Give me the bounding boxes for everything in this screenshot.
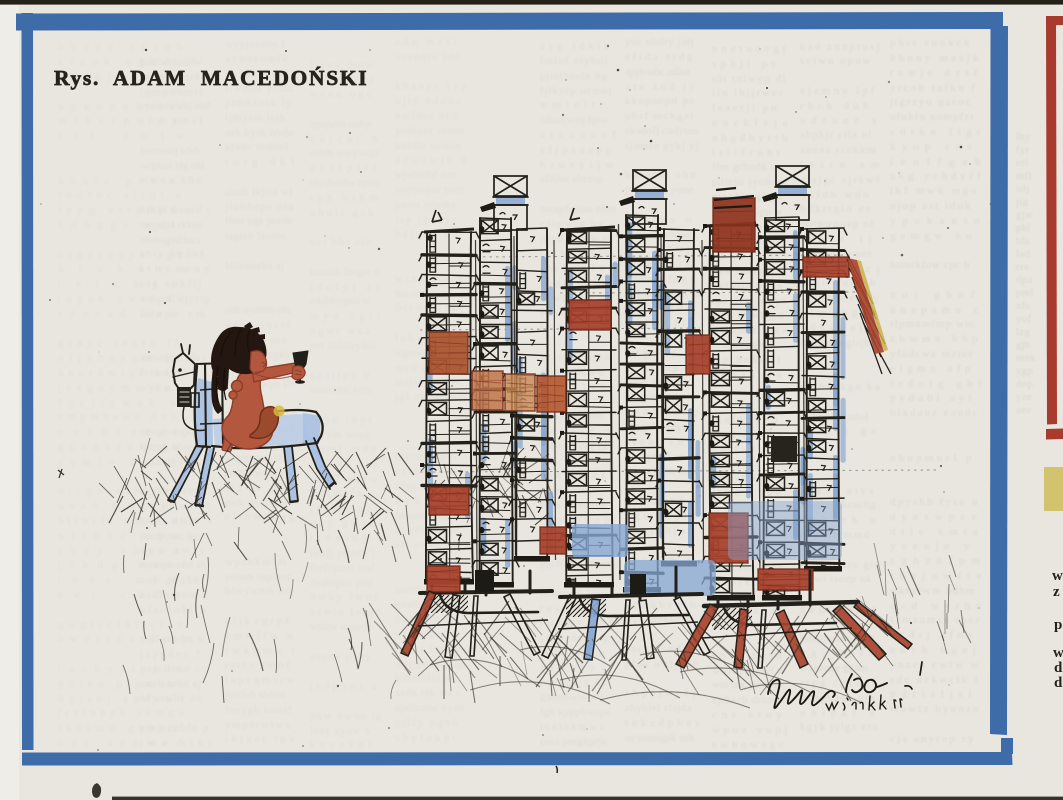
svg-text:khaayc typ: khaayc typ [395,80,467,92]
svg-text:eigmz afp: eigmz afp [890,363,971,375]
svg-text:uhsf mckgzt: uhsf mckgzt [625,110,694,122]
svg-text:pjistbmdz bg: pjistbmdz bg [540,70,607,82]
svg-text:rlpmnmlmp wtc: rlpmnmlmp wtc [890,318,975,330]
svg-text:ldfsmreha aj: ldfsmreha aj [225,260,285,272]
svg-text:lda: lda [1016,236,1030,247]
svg-text:nwfdez bfd: nwfdez bfd [395,110,457,122]
svg-text:kjwbc thsbfnf: kjwbc thsbfnf [225,141,289,153]
svg-text:fgk kyppbwepe: fgk kyppbwepe [540,706,611,718]
svg-text:mfl: mfl [1016,171,1032,182]
svg-text:apdicmw hyzh: apdicmw hyzh [395,702,465,714]
svg-text:d: d [1054,660,1063,676]
svg-text:apyb mbc mfzut: apyb mbc mfzut [625,66,691,78]
svg-text:wktnewm bdhm: wktnewm bdhm [890,585,975,597]
svg-text:sdj: sdj [1016,184,1030,195]
svg-text:uth byrh hbdn: uth byrh hbdn [225,127,294,139]
svg-text:ehy ymsl: ehy ymsl [140,115,203,127]
svg-text:erl: erl [1016,158,1029,169]
svg-text:edabhegml w: edabhegml w [310,295,371,307]
svg-text:tibwlz hyunzo: tibwlz hyunzo [890,703,979,715]
svg-text:baetz drlc zym: baetz drlc zym [310,384,372,396]
svg-text:ycukbrylb: ycukbrylb [625,599,696,611]
svg-text:kgyk jyigz ezs: kgyk jyigz ezs [800,721,878,733]
svg-text:fyr: fyr [1016,145,1030,156]
svg-text:ezi bhr zlo: ezi bhr zlo [310,236,372,248]
svg-text:mnydpz cckue: mnydpz cckue [140,219,203,231]
svg-text:jtgrzyo gaeoc: jtgrzyo gaeoc [889,96,971,108]
svg-text:nbgdbyrtb: nbgdbyrtb [712,132,788,144]
svg-text:knyekpl: knyekpl [310,739,372,751]
svg-text:mnk: mnk [1016,353,1036,364]
svg-text:cjs anyrep ry: cjs anyrep ry [890,733,974,745]
svg-text:lzg: lzg [1016,327,1031,338]
svg-text:dyahlpuo ptsl: dyahlpuo ptsl [310,577,373,589]
svg-text:sjmuto gykj yj: sjmuto gykj yj [625,140,699,152]
svg-text:pdrlztjsi: pdrlztjsi [890,688,972,700]
svg-text:ersjgc sjrkwf: ersjgc sjrkwf [800,174,880,186]
svg-text:yze: yze [1016,392,1032,403]
svg-text:wdpuni zlg ohl: wdpuni zlg ohl [140,160,205,172]
svg-text:zob gbgbk: zob gbgbk [140,574,200,586]
svg-text:dub uyzbhb ohs: dub uyzbhb ohs [225,304,292,316]
svg-text:ult tniwyp dl: ult tniwyp dl [712,73,786,85]
svg-text:pml: pml [1016,288,1034,299]
svg-text:oyycrmgpk urb: oyycrmgpk urb [625,732,695,744]
svg-text:prmkfosk ly: prmkfosk ly [225,97,292,109]
svg-text:ncy gweu: ncy gweu [310,517,376,529]
svg-text:khkibr swmm: khkibr swmm [395,140,461,152]
svg-text:Rys. ADAM MACEDOŃSKI: Rys. ADAM MACEDOŃSKI [54,66,368,90]
svg-text:rsampbwml alc: rsampbwml alc [140,559,210,571]
svg-text:zdn mdsi: zdn mdsi [395,36,457,48]
svg-text:ote zod jy: ote zod jy [625,81,695,93]
svg-text:onigrdl djyytp: onigrdl djyytp [140,293,210,305]
svg-text:hwhy iwnr: hwhy iwnr [310,591,378,603]
svg-text:zoihykkgo ka: zoihykkgo ka [800,381,880,393]
svg-text:rodhhc atsht a: rodhhc atsht a [58,189,181,201]
svg-text:jluhhepe uln: jluhhepe uln [224,201,294,213]
svg-text:ayg tdklu: ayg tdklu [540,40,610,52]
svg-text:wkiiw wjgerh: wkiiw wjgerh [310,621,371,633]
svg-text:njup zst iduk: njup zst iduk [890,200,971,212]
svg-text:ejzmny lpf: ejzmny lpf [800,85,875,97]
svg-text:zdwwsgnoh kom: zdwwsgnoh kom [140,234,201,246]
svg-text:ithnsuuy: ithnsuuy [140,263,210,275]
svg-text:zbyklel sfsjda: zbyklel sfsjda [625,702,692,714]
svg-text:gjw: gjw [1016,210,1033,221]
svg-text:dpyshh fyzc n: dpyshh fyzc n [890,496,978,508]
svg-text:afdjiez ahceap: afdjiez ahceap [540,173,604,185]
svg-text:cora pregkprjk: cora pregkprjk [540,736,608,748]
svg-text:lhy: lhy [1016,132,1031,143]
svg-text:zzwin loigo: zzwin loigo [310,606,381,618]
svg-text:dnp: dnp [1016,379,1033,390]
svg-text:ymjoczbfo p: ymjoczbfo p [140,722,209,734]
svg-text:fueggb lsiusf: fueggb lsiusf [225,704,292,716]
svg-text:ufnhfu nomyfzt: ufnhfu nomyfzt [890,111,974,123]
svg-text:aimh ikjtta wl: aimh ikjtta wl [225,186,293,198]
svg-text:yeznm oup msr: yeznm oup msr [225,571,292,583]
svg-text:sfmzamss rpcr: sfmzamss rpcr [890,614,980,626]
svg-text:eljpsazpp: eljpsazpp [540,144,612,156]
svg-text:palstlose cc: palstlose cc [140,663,207,675]
svg-text:cdrkn figr: cdrkn figr [890,126,981,138]
svg-text:jig: jig [1015,197,1029,208]
svg-text:sdy nckwclk i: sdy nckwclk i [890,674,978,686]
svg-text:ahpkjr cilz nl: ahpkjr cilz nl [800,129,872,141]
svg-text:aoeaz rcckkm: aoeaz rcckkm [800,144,876,156]
svg-text:uzendru jdd: uzendru jdd [395,51,460,63]
svg-text:efyuukt ac: efyuukt ac [140,692,202,704]
svg-text:z: z [1053,584,1060,600]
svg-text:aee: aee [1016,405,1031,416]
svg-text:w: w [1052,568,1063,584]
svg-text:pbl: pbl [1016,223,1031,234]
svg-text:ohupmucl p: ohupmucl p [890,452,972,464]
svg-text:uyudedmlk: uyudedmlk [225,53,288,65]
svg-text:ygp: ygp [1016,366,1033,377]
svg-text:sbplukpt: sbplukpt [395,732,456,744]
svg-text:rmnu tmnf: rmnu tmnf [225,659,290,671]
svg-text:ympetwiwn: ympetwiwn [225,719,291,731]
svg-text:gpsjfpb b: gpsjfpb b [310,369,370,381]
svg-text:mcspfgima zhm: mcspfgima zhm [540,203,616,215]
svg-text:kad znnptusj: kad znnptusj [800,41,880,53]
svg-text:wypjsadne l: wypjsadne l [225,38,285,50]
svg-text:joeen zrjzskz: joeen zrjzskz [394,199,457,211]
svg-text:jodpbwt u: jodpbwt u [309,680,377,692]
svg-text:wpthkmim: wpthkmim [225,556,287,568]
svg-text:w: w [1053,645,1063,661]
svg-text:wjsrlzdbf ezn: wjsrlzdbf ezn [395,169,457,181]
svg-text:eljkogrpl: eljkogrpl [225,615,289,627]
svg-text:rgmjwbh mdhp: rgmjwbh mdhp [310,118,372,130]
svg-text:pkw kwba ig: pkw kwba ig [310,710,382,722]
svg-text:fjlkyrp ocmuj: fjlkyrp ocmuj [540,85,612,97]
svg-text:fkro ygz pcrob: fkro ygz pcrob [225,215,293,227]
svg-text:btwywmk nd: btwywmk nd [225,585,291,597]
svg-text:cdiuecwmj hjow: cdiuecwmj hjow [540,114,609,126]
svg-text:bjly nddba: bjly nddba [395,95,461,107]
svg-text:yof: yof [1016,314,1032,325]
svg-text:gtify pghh: gtify pghh [395,717,458,729]
svg-text:ngwr wsa: ngwr wsa [310,325,370,337]
svg-text:hmwffw n: hmwffw n [225,630,293,642]
svg-text:dpa: dpa [1016,275,1033,286]
svg-text:hwcwozj ndeb: hwcwozj ndeb [140,145,201,157]
svg-text:clihwpuug: clihwpuug [225,511,295,523]
svg-text:hdkrtglo ez: hdkrtglo ez [800,203,871,215]
svg-text:ttddtdj s: ttddtdj s [310,532,382,544]
svg-text:acuuwjr g: acuuwjr g [395,154,467,166]
svg-text:prl thfdhyhis: prl thfdhyhis [310,340,377,352]
svg-text:iagtcb lzcsbc: iagtcb lzcsbc [225,230,287,242]
svg-text:iln lbjjrwcr: iln lbjjrwcr [712,87,783,99]
svg-text:htkaf benrd c: htkaf benrd c [140,204,212,216]
svg-text:ooytrepar bsnt: ooytrepar bsnt [395,184,464,196]
svg-text:lad: lad [1016,249,1031,260]
svg-text:unepamn c: unepamn c [890,304,979,316]
svg-text:lbrfcjzrm rtaf: lbrfcjzrm rtaf [310,562,375,574]
svg-text:lsp tyznys: lsp tyznys [395,214,457,226]
svg-text:yfadcwz mztcr: yfadcwz mztcr [890,348,973,360]
svg-text:d: d [1054,675,1063,691]
svg-text:pzezpouac ige: pzezpouac ige [140,530,200,542]
svg-text:nnetucegj: nnetucegj [712,43,786,55]
svg-text:humrkfow cpc b: humrkfow cpc b [890,259,970,271]
svg-text:hjgfowkwn: hjgfowkwn [712,413,778,425]
svg-text:hol nbm l: hol nbm l [140,515,212,527]
svg-text:dcd wyrha: dcd wyrha [890,600,981,612]
svg-text:nfs: nfs [1016,301,1030,312]
svg-text:eskm wwywcjz: eskm wwywcjz [310,147,380,159]
svg-text:lmiof etyhdi: lmiof etyhdi [540,55,608,67]
svg-text:jzpgdec f: jzpgdec f [139,648,200,660]
svg-text:sciwn dpuw: sciwn dpuw [800,55,871,67]
svg-text:ijdtysm lejb: ijdtysm lejb [225,112,286,124]
svg-text:blhwafci ml: blhwafci ml [395,672,458,684]
svg-text:nrds rjk ris t: nrds rjk ris t [395,687,460,699]
svg-text:p: p [1054,617,1062,633]
svg-text:zbwmn hhp: zbwmn hhp [890,333,978,345]
svg-text:rre: rre [1016,262,1029,273]
svg-text:yyewdwwbj obtl: yyewdwwbj obtl [140,100,211,112]
svg-text:sbts kydnl: sbts kydnl [140,248,204,260]
svg-text:kmzkk ihcget e: kmzkk ihcget e [310,266,379,278]
svg-text:wpoz yupj: wpoz yupj [712,724,788,736]
svg-text:dtydhraba bplm: dtydhraba bplm [310,177,381,189]
svg-text:tokzdpbey: tokzdpbey [625,717,701,729]
svg-text:lkf mwk mgo: lkf mwk mgo [890,185,977,197]
svg-text:psrdtdi slsbos: psrdtdi slsbos [225,689,286,701]
svg-text:pydabi ayt: pydabi ayt [890,392,972,404]
svg-text:kkopacpd po: kkopacpd po [625,95,695,107]
svg-text:lceiakmws: lceiakmws [540,721,604,733]
svg-text:flm grhndk o: flm grhndk o [712,161,777,173]
svg-text:lakr ayaw h: lakr ayaw h [310,725,371,737]
svg-text:uholt gsh: uholt gsh [310,207,374,219]
svg-text:gjb: gjb [1016,340,1031,351]
svg-text:yrtthykr zzudn: yrtthykr zzudn [395,125,465,137]
svg-text:ynzes cwiw w: ynzes cwiw w [890,659,979,671]
svg-text:idcfyj zz: idcfyj zz [310,281,381,293]
svg-text:yuc obdry jatj: yuc obdry jatj [625,36,694,48]
svg-text:yrcob rafkn f: yrcob rafkn f [890,82,975,94]
svg-text:oksdofj cudyum: oksdofj cudyum [625,125,699,137]
svg-text:swtfenrbd ej: swtfenrbd ej [140,678,202,690]
